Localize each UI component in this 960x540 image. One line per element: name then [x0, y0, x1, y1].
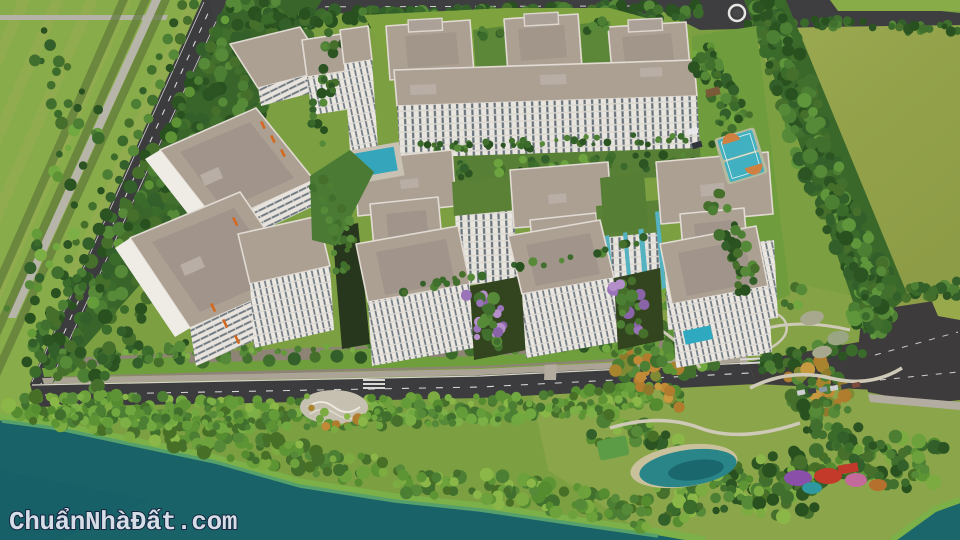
svg-text:ChuẩnNhàĐất.com: ChuẩnNhàĐất.com: [9, 507, 237, 537]
